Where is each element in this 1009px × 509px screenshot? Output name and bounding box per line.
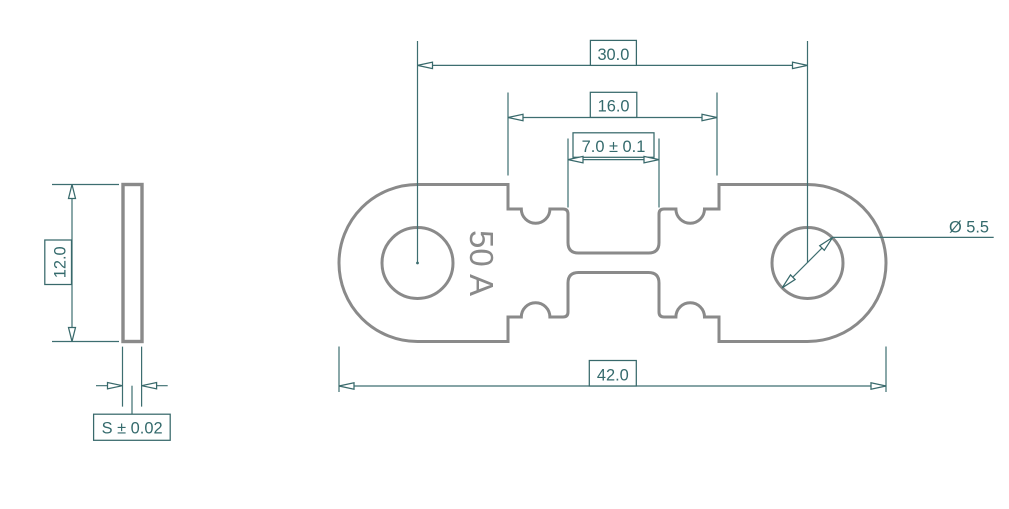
- svg-text:50 A: 50 A: [463, 230, 500, 296]
- svg-text:30.0: 30.0: [597, 46, 629, 64]
- svg-text:7.0 ± 0.1: 7.0 ± 0.1: [582, 138, 646, 156]
- svg-text:12.0: 12.0: [52, 246, 70, 278]
- svg-text:16.0: 16.0: [598, 98, 630, 116]
- svg-text:Ø 5.5: Ø 5.5: [949, 219, 989, 237]
- svg-text:42.0: 42.0: [597, 366, 629, 384]
- svg-text:S ± 0.02: S ± 0.02: [102, 419, 163, 437]
